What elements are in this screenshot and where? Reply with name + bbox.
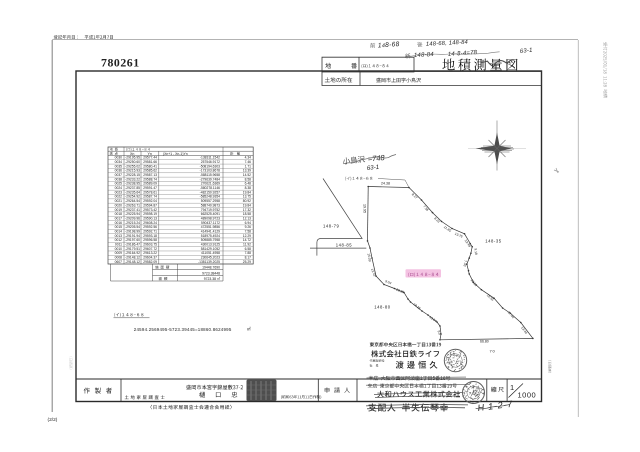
svg-text:-508194.6303: -508194.6303 (200, 164, 221, 168)
svg-text:12.32: 12.32 (370, 268, 377, 277)
svg-text:9.04: 9.04 (385, 279, 393, 285)
svg-text:-29205.54: -29205.54 (125, 225, 140, 229)
svg-text:411051.4958: 411051.4958 (201, 251, 220, 255)
svg-text:148-79: 148-79 (323, 224, 339, 229)
svg-text:(Xn+1 - Xn-1)Yn: (Xn+1 - Xn-1)Yn (163, 152, 188, 156)
svg-text:0018: 0018 (115, 212, 123, 216)
svg-text:-588115.9658: -588115.9658 (200, 173, 220, 177)
svg-text:19.84: 19.84 (243, 203, 251, 207)
svg-text:15.09: 15.09 (367, 253, 372, 262)
svg-text:0037: 0037 (115, 173, 123, 177)
svg-text:29587.74: 29587.74 (143, 195, 157, 199)
svg-text:24594.2569495-5723.39445=18860: 24594.2569495-5723.39445=18860.8624995 (134, 327, 232, 332)
svg-text:0020: 0020 (115, 203, 123, 207)
svg-text:20.96: 20.96 (396, 288, 405, 295)
svg-text:=748: =748 (367, 153, 385, 164)
svg-text:6.48: 6.48 (245, 182, 252, 186)
svg-text:13.04: 13.04 (428, 315, 437, 323)
svg-text:12.29: 12.29 (243, 234, 251, 238)
svg-text:-138311.1542: -138311.1542 (200, 156, 220, 160)
svg-text:-29238.95: -29238.95 (125, 182, 140, 186)
svg-text:-29195.95: -29195.95 (125, 156, 140, 160)
svg-text:-29148.12: -29148.12 (125, 260, 140, 264)
svg-text:662525.4091: 662525.4091 (201, 212, 220, 216)
svg-text:0025: 0025 (115, 182, 123, 186)
svg-text:29594.87: 29594.87 (143, 203, 157, 207)
svg-text:270621.6369: 270621.6369 (201, 182, 220, 186)
svg-text:-585248.9354: -585248.9354 (200, 195, 221, 199)
svg-text:17.00: 17.00 (507, 310, 516, 319)
svg-text:148-68: 148-68 (378, 41, 400, 50)
svg-text:0009: 0009 (115, 251, 123, 255)
svg-text:-29225.94: -29225.94 (125, 212, 140, 216)
svg-text:518975.4924: 518975.4924 (201, 234, 220, 238)
svg-text:-29164.92: -29164.92 (125, 251, 140, 255)
svg-text:18.58: 18.58 (243, 212, 251, 216)
svg-text:-29263.71: -29263.71 (125, 203, 140, 207)
svg-text:29592.56: 29592.56 (143, 225, 157, 229)
svg-text:29577.44: 29577.44 (143, 156, 157, 160)
svg-text:19.95: 19.95 (362, 204, 366, 213)
svg-text:70: 70 (490, 349, 496, 354)
svg-text:13.44: 13.44 (520, 326, 528, 335)
svg-text:18.55: 18.55 (486, 293, 495, 302)
svg-text:1000: 1000 (518, 391, 537, 400)
svg-text:8.23: 8.23 (433, 216, 441, 223)
svg-text:148-68, 148-84: 148-68, 148-84 (426, 40, 468, 48)
svg-text:29593.18: 29593.18 (143, 234, 157, 238)
svg-text:9.26: 9.26 (245, 225, 252, 229)
svg-text:0011: 0011 (115, 243, 122, 247)
svg-text:1: 1 (510, 383, 514, 392)
svg-text:-29228.15: -29228.15 (125, 173, 140, 177)
svg-text:-29254.92: -29254.92 (125, 195, 140, 199)
svg-text:148-85: 148-85 (336, 242, 352, 247)
svg-text:0607: 0607 (115, 260, 123, 264)
svg-text:-29191.94: -29191.94 (125, 234, 140, 238)
svg-text:472551.9856: 472551.9856 (201, 225, 220, 229)
svg-text:4.34: 4.34 (245, 156, 252, 160)
svg-text:0035: 0035 (115, 164, 123, 168)
svg-text:0030: 0030 (115, 156, 123, 160)
svg-text:13.49: 13.49 (464, 239, 472, 248)
svg-text:-29255.02: -29255.02 (125, 164, 140, 168)
svg-text:63-1: 63-1 (366, 164, 379, 172)
svg-text:-29186.47: -29186.47 (125, 243, 140, 247)
svg-text:7.88: 7.88 (245, 251, 252, 255)
svg-text:0022: 0022 (115, 195, 123, 199)
svg-text:25.29: 25.29 (243, 260, 251, 264)
svg-text:29582.09: 29582.09 (143, 260, 157, 264)
svg-text:780261: 780261 (101, 56, 140, 70)
svg-text:9723.38: 9723.38 (204, 277, 216, 281)
svg-text:63-1: 63-1 (520, 48, 533, 55)
svg-text:13.75: 13.75 (243, 195, 251, 199)
svg-text:0015: 0015 (115, 225, 123, 229)
svg-text:588740.9873: 588740.9873 (201, 203, 220, 207)
svg-text:9723.38448: 9723.38448 (202, 271, 220, 275)
svg-text:148-80: 148-80 (374, 305, 390, 310)
svg-text:-1381139.2025: -1381139.2025 (198, 260, 220, 264)
svg-text:29580.41: 29580.41 (143, 164, 157, 168)
svg-text:66.80: 66.80 (480, 339, 489, 343)
svg-text:0013: 0013 (115, 234, 123, 238)
svg-text:148-35: 148-35 (485, 238, 501, 243)
svg-text:1.71: 1.71 (245, 164, 252, 168)
svg-text:9.5: 9.5 (437, 330, 442, 336)
svg-text:29613.22: 29613.22 (143, 251, 157, 255)
svg-text:29587.13: 29587.13 (143, 173, 157, 177)
svg-text:24.38: 24.38 (381, 182, 390, 186)
svg-text:29589.09: 29589.09 (143, 182, 157, 186)
svg-text:14.52: 14.52 (243, 173, 251, 177)
svg-text:19448.7690: 19448.7690 (202, 266, 220, 270)
svg-text:430013.9125: 430013.9125 (201, 243, 220, 247)
svg-text:11.85: 11.85 (443, 225, 452, 233)
svg-text:9.18: 9.18 (474, 248, 479, 255)
svg-text:7.33: 7.33 (463, 260, 468, 267)
svg-text:29598.19: 29598.19 (143, 212, 157, 216)
svg-text:(2/2): (2/2) (48, 417, 58, 423)
svg-text:11.92: 11.92 (243, 243, 251, 247)
svg-text:8.17: 8.17 (411, 192, 418, 199)
svg-text:148-84: 148-84 (414, 52, 435, 59)
svg-text:29603.75: 29603.75 (143, 243, 157, 247)
svg-text:7.36: 7.36 (422, 205, 429, 213)
